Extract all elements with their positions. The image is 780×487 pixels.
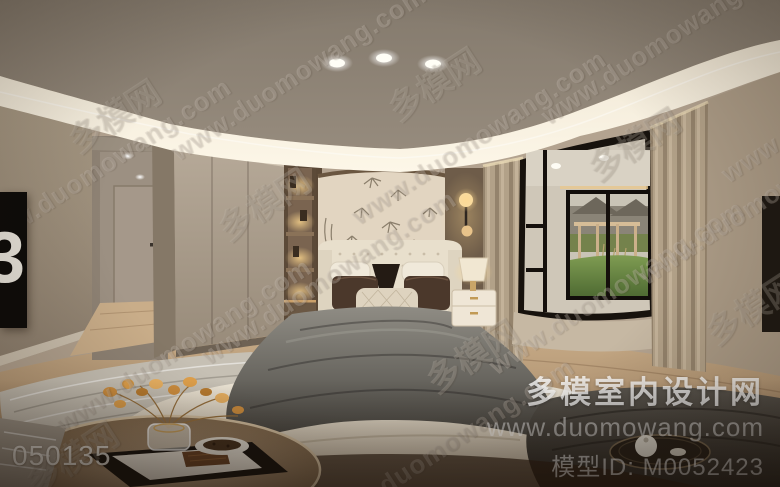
downlight-icon (599, 155, 609, 161)
hallway-downlight-icon (122, 153, 134, 160)
snack-plate (195, 437, 249, 455)
shelf-decor (300, 210, 307, 221)
artwork-digit: 3 (0, 210, 25, 306)
tv-panel (762, 196, 780, 332)
downlight-icon (551, 163, 561, 169)
garden-view (566, 190, 652, 300)
curtain-right (650, 102, 708, 372)
wall-sconce-icon (462, 226, 473, 237)
shelf-decor (290, 176, 296, 188)
bedroom-scene (0, 0, 780, 487)
hallway-downlight-icon (135, 174, 145, 180)
shelf-decor (293, 246, 299, 257)
teacup (670, 448, 686, 456)
nightstand (452, 258, 496, 326)
panorama-photo: www.duomowang.com www.duomowang.com www.… (0, 0, 780, 487)
tea-tray (610, 435, 710, 469)
wardrobe (152, 130, 284, 358)
shelf-unit (284, 156, 322, 334)
artwork-poster: 3 (0, 192, 27, 328)
